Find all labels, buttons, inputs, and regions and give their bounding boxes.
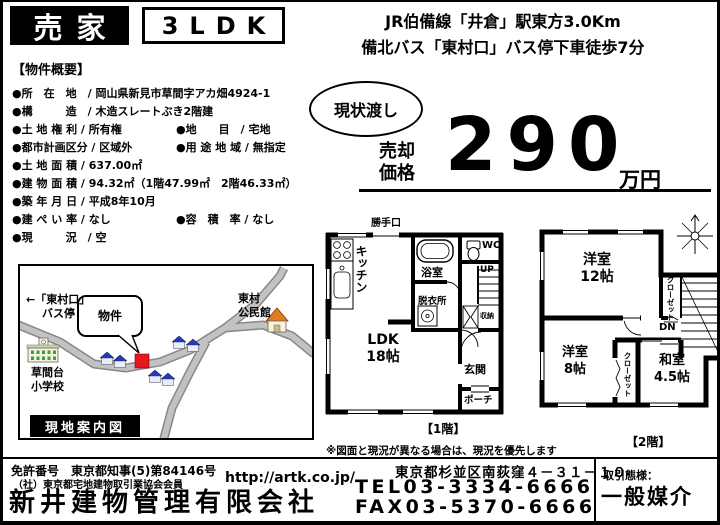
layout-badge: 3LDK bbox=[142, 7, 285, 44]
label-up: UP bbox=[480, 265, 494, 275]
overview-row: ●建 物 面 積 / 94.32㎡（1階47.99㎡ 2階46.33㎡） bbox=[12, 175, 334, 193]
closet-b-door bbox=[616, 360, 620, 396]
floorplan-2f: 洋室 12帖 クローゼット DN 洋室 8帖 クローゼット 和室 4.5帖 【2… bbox=[538, 212, 720, 452]
label-wc: WC bbox=[482, 240, 500, 251]
label-room12-line2: 12帖 bbox=[566, 269, 628, 286]
access-line-2: 備北バス「東村口」バス停下車徒歩7分 bbox=[291, 35, 715, 61]
label-room8-line2: 8帖 bbox=[546, 361, 604, 378]
school-line2: 小学校 bbox=[31, 380, 64, 394]
overview-row: ●土 地 権 利 / 所有権●地 目 / 宅地 bbox=[12, 121, 334, 139]
property-callout-text: 物件 bbox=[78, 307, 142, 324]
label-bath: 浴室 bbox=[421, 264, 443, 280]
label-kitchen: キッチン bbox=[353, 245, 370, 293]
overview-cell: ●構 造 / 木造スレートぶき2階建 bbox=[12, 103, 213, 121]
overview-cell: ●都市計画区分 / 区域外 bbox=[12, 139, 176, 157]
company-name: 新井建物管理有限会社 bbox=[9, 488, 319, 518]
overview-row: ●土 地 面 積 / 637.00㎡ bbox=[12, 157, 334, 175]
price-label-line1: 売却 bbox=[379, 141, 415, 163]
overview-title: 【物件概要】 bbox=[12, 59, 334, 78]
label-back-door: 勝手口 bbox=[371, 214, 401, 229]
overview-row: ●所 在 地 / 岡山県新見市草間字アカ畑4924-1 bbox=[12, 85, 334, 103]
label-washitsu: 和室 4.5帖 bbox=[641, 352, 703, 386]
sale-tag: 売家 bbox=[10, 6, 129, 45]
website-url: http://artk.co.jp/ bbox=[225, 470, 355, 486]
north-compass-icon bbox=[677, 215, 713, 254]
house-icon bbox=[161, 373, 175, 386]
overview-cell: ●現 況 / 空 bbox=[12, 229, 176, 247]
map-caption: 現地案内図 bbox=[30, 415, 140, 437]
dealing-type-value: 一般媒介 bbox=[601, 481, 693, 511]
stairs bbox=[681, 275, 720, 358]
house-icon bbox=[100, 352, 114, 365]
house-icon bbox=[148, 370, 162, 383]
house-icon bbox=[172, 336, 186, 349]
overview-row: ●構 造 / 木造スレートぶき2階建 bbox=[12, 103, 334, 121]
stove-icon bbox=[331, 239, 353, 261]
label-closet-a: クローゼット bbox=[665, 276, 676, 321]
overview-cell: ●土 地 面 積 / 637.00㎡ bbox=[12, 157, 176, 175]
sink-icon bbox=[331, 261, 353, 309]
back-door bbox=[373, 232, 399, 239]
access-line-1: JR伯備線「井倉」駅東方3.0Km bbox=[291, 9, 715, 35]
price-label: 売却 価格 bbox=[379, 141, 415, 185]
overview-cell: ●地 目 / 宅地 bbox=[176, 121, 334, 139]
community-center-label: 東村 公民館 bbox=[238, 292, 271, 320]
property-marker bbox=[135, 354, 149, 368]
label-washitsu-line1: 和室 bbox=[641, 352, 703, 369]
school-line1: 草間台 bbox=[31, 366, 64, 380]
community-center-line1: 東村 bbox=[238, 292, 271, 306]
label-entrance: 玄関 bbox=[464, 361, 486, 377]
school-label: 草間台 小学校 bbox=[31, 366, 64, 394]
label-room12: 洋室 12帖 bbox=[566, 252, 628, 286]
label-room8-line1: 洋室 bbox=[546, 344, 604, 361]
floorplan-1f: 勝手口 キッチン 浴室 WC UP 脱衣所 収納 LDK 18帖 玄関 ポーチ … bbox=[323, 214, 523, 436]
bus-stop-line1: ←「東村口」 bbox=[26, 293, 90, 307]
washer-icon bbox=[418, 306, 437, 326]
overview-cell bbox=[296, 175, 334, 193]
label-dn: DN bbox=[659, 322, 676, 333]
overview-cell bbox=[176, 193, 334, 211]
bathtub-icon bbox=[417, 240, 453, 262]
label-dressing: 脱衣所 bbox=[418, 293, 447, 307]
overview-cell: ●建 ぺ い 率 / なし bbox=[12, 211, 176, 229]
caption-1f: 【1階】 bbox=[421, 420, 465, 437]
fax-number: FAX03-5370-6666 bbox=[355, 497, 596, 517]
label-room12-line1: 洋室 bbox=[566, 252, 628, 269]
label-ldk: LDK 18帖 bbox=[353, 332, 413, 366]
label-washitsu-line2: 4.5帖 bbox=[641, 369, 703, 386]
price-value: 290 bbox=[445, 108, 629, 182]
location-map: ←「東村口」 バス停 物件 東村 公民館 草間台 小学校 現地案内図 bbox=[18, 264, 314, 440]
access-info: JR伯備線「井倉」駅東方3.0Km 備北バス「東村口」バス停下車徒歩7分 bbox=[291, 9, 715, 61]
price-underline bbox=[359, 189, 711, 192]
toilet-icon bbox=[467, 241, 480, 261]
overview-cell: ●築 年 月 日 / 平成8年10月 bbox=[12, 193, 176, 211]
phone-number: TEL03-3334-6666 bbox=[355, 477, 594, 497]
overview-cell bbox=[176, 157, 334, 175]
overview-cell: ●建 物 面 積 / 94.32㎡（1階47.99㎡ 2階46.33㎡） bbox=[12, 175, 296, 193]
sliding-door bbox=[642, 341, 678, 344]
label-ldk-line2: 18帖 bbox=[353, 349, 413, 366]
label-ldk-line1: LDK bbox=[353, 332, 413, 349]
overview-cell: ●所 在 地 / 岡山県新見市草間字アカ畑4924-1 bbox=[12, 85, 270, 103]
footer-divider bbox=[3, 457, 717, 459]
overview-cell: ●土 地 権 利 / 所有権 bbox=[12, 121, 176, 139]
property-overview: 【物件概要】 ●所 在 地 / 岡山県新見市草間字アカ畑4924-1 ●構 造 … bbox=[12, 59, 334, 247]
flyer-page: 売家 3LDK JR伯備線「井倉」駅東方3.0Km 備北バス「東村口」バス停下車… bbox=[0, 0, 720, 525]
overview-row: ●現 況 / 空 bbox=[12, 229, 334, 247]
overview-cell: ●用 途 地 域 / 無指定 bbox=[176, 139, 334, 157]
as-is-badge: 現状渡し bbox=[309, 81, 423, 137]
overview-row: ●建 ぺ い 率 / なし●容 積 率 / なし bbox=[12, 211, 334, 229]
label-storage: 収納 bbox=[480, 311, 494, 321]
label-closet-b: クローゼット bbox=[622, 352, 633, 397]
caption-2f: 【2階】 bbox=[626, 433, 670, 450]
storage-door bbox=[463, 306, 478, 328]
label-room8: 洋室 8帖 bbox=[546, 344, 604, 378]
floorplan-note: ※図面と現況が異なる場合は、現況を優先します bbox=[326, 443, 557, 458]
overview-row: ●築 年 月 日 / 平成8年10月 bbox=[12, 193, 334, 211]
label-porch: ポーチ bbox=[464, 392, 493, 406]
price-label-line2: 価格 bbox=[379, 163, 415, 185]
overview-cell bbox=[176, 229, 334, 247]
overview-cell: ●容 積 率 / なし bbox=[176, 211, 334, 229]
community-center-line2: 公民館 bbox=[238, 306, 271, 320]
overview-row: ●都市計画区分 / 区域外●用 途 地 域 / 無指定 bbox=[12, 139, 334, 157]
house-icon bbox=[113, 355, 127, 368]
